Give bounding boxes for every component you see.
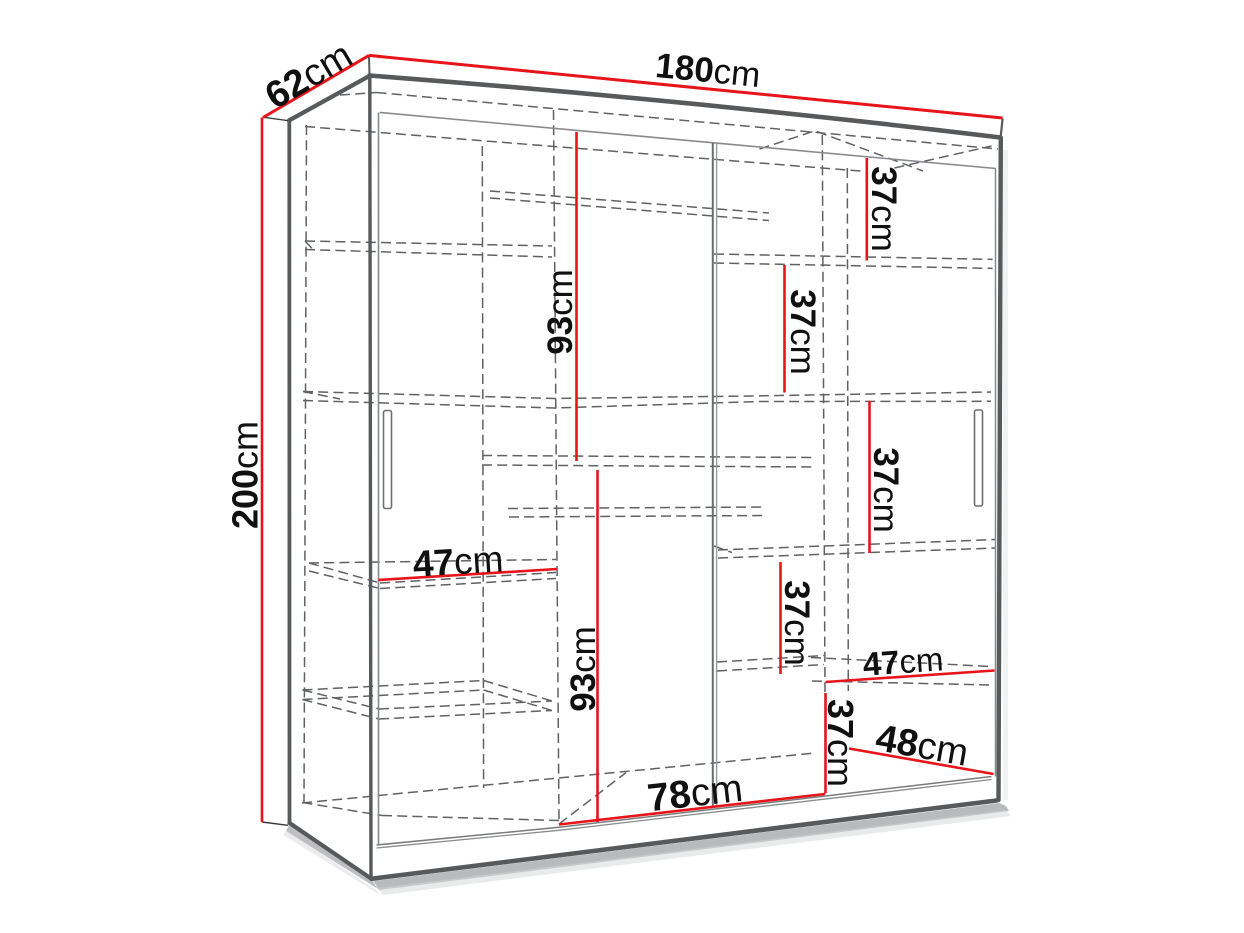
svg-text:37cm: 37cm <box>778 580 817 666</box>
svg-text:93cm: 93cm <box>564 626 603 712</box>
svg-text:47cm: 47cm <box>412 538 505 584</box>
svg-text:200cm: 200cm <box>224 421 265 529</box>
svg-text:37cm: 37cm <box>865 166 904 252</box>
svg-text:37cm: 37cm <box>784 289 823 375</box>
svg-text:93cm: 93cm <box>541 269 580 355</box>
svg-text:47cm: 47cm <box>861 640 944 683</box>
svg-text:37cm: 37cm <box>867 447 906 533</box>
svg-text:37cm: 37cm <box>821 699 862 787</box>
